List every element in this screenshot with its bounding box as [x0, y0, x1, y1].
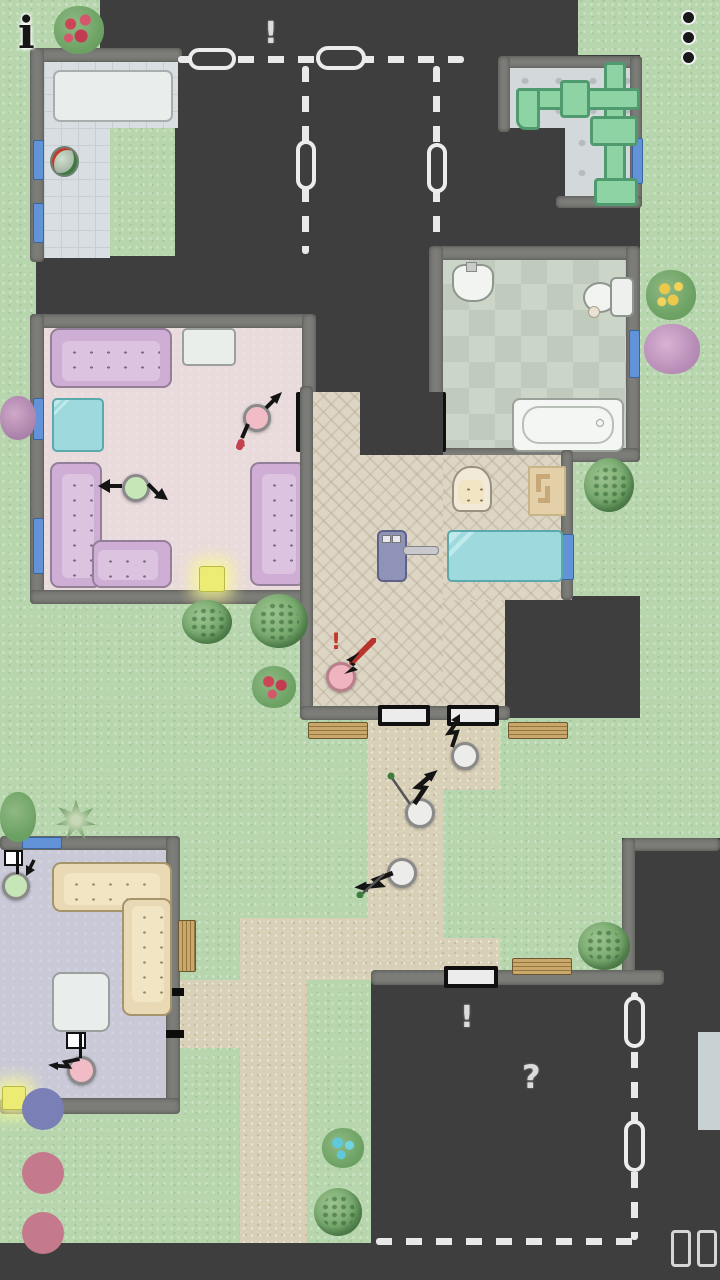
- menu-dot-icon: [681, 50, 696, 65]
- bench[interactable]: [178, 920, 196, 972]
- pause-bar-icon: [671, 1230, 691, 1267]
- exercise-machine-bar: [403, 546, 439, 555]
- tree: [578, 922, 630, 970]
- planned-door[interactable]: [316, 46, 366, 70]
- pouf-rose[interactable]: [22, 1152, 64, 1194]
- purple-bush: [644, 324, 700, 374]
- carried-red-item: [232, 422, 254, 452]
- menu-dot-icon: [681, 30, 696, 45]
- patio-door-1[interactable]: [378, 705, 430, 726]
- roof-mid-block: [505, 596, 640, 718]
- path: [177, 980, 240, 1048]
- direction-arrow: [20, 858, 40, 878]
- long-glass-table[interactable]: [447, 530, 563, 582]
- se-house-door[interactable]: [444, 966, 498, 988]
- red-flower-bush: [252, 666, 296, 708]
- pipe-coupling[interactable]: [590, 116, 638, 146]
- pipe-coupling[interactable]: [594, 178, 638, 206]
- wall: [30, 48, 182, 62]
- wall: [498, 56, 510, 132]
- tv-table[interactable]: [182, 328, 236, 366]
- planned-wall: [376, 1238, 640, 1245]
- zigzag-arrow: [408, 770, 442, 806]
- flag-pole: [16, 852, 19, 874]
- bench[interactable]: [308, 722, 368, 739]
- roof-central-column: [303, 250, 443, 394]
- corner-sofa-horiz[interactable]: [92, 540, 172, 588]
- sofa-3seat[interactable]: [50, 328, 172, 388]
- wall: [30, 314, 316, 328]
- purple-bush: [0, 396, 36, 440]
- planter-pot[interactable]: [50, 146, 79, 177]
- bush: [0, 792, 36, 842]
- planned-alert-marker: !: [264, 16, 278, 51]
- side-table[interactable]: [52, 972, 110, 1032]
- tree: [584, 458, 634, 512]
- se-question-marker: ?: [522, 1058, 541, 1096]
- info-button[interactable]: i: [18, 12, 35, 56]
- bean-bag-blue[interactable]: [22, 1088, 64, 1130]
- sink-faucet: [466, 262, 477, 272]
- window: [33, 140, 44, 180]
- game-map: !: [0, 0, 720, 1280]
- pouf-rose[interactable]: [22, 1212, 64, 1254]
- bed[interactable]: [53, 70, 173, 122]
- window: [629, 330, 640, 378]
- pause-button[interactable]: [671, 1230, 717, 1267]
- blue-flower-bush: [322, 1128, 364, 1168]
- pause-bar-icon: [697, 1230, 717, 1267]
- window: [33, 203, 44, 243]
- armchair[interactable]: [452, 466, 492, 512]
- path: [240, 980, 307, 1243]
- tree: [250, 594, 308, 648]
- planned-door[interactable]: [188, 48, 236, 70]
- roof-central-notch-b: [360, 392, 443, 455]
- rug[interactable]: [528, 466, 566, 516]
- roof-above-living: [36, 256, 308, 318]
- glass-table[interactable]: [52, 398, 104, 452]
- roof-planned-zone: [175, 55, 467, 260]
- toilet-paper: [588, 306, 600, 318]
- pipe-elbow[interactable]: [516, 88, 540, 130]
- tree: [314, 1188, 362, 1236]
- lounge-sofa-vert[interactable]: [122, 898, 172, 1016]
- planned-door[interactable]: [624, 996, 645, 1048]
- planned-door[interactable]: [427, 143, 447, 193]
- zigzag-arrow: [440, 714, 470, 748]
- bathtub-drain: [596, 419, 604, 427]
- distant-floor-notch: [698, 1032, 720, 1130]
- window: [22, 837, 62, 849]
- wall: [300, 386, 313, 718]
- red-flower-bush: [54, 6, 104, 54]
- pipe-coupling[interactable]: [560, 80, 590, 118]
- direction-arrow: [262, 390, 284, 412]
- green-sprout: [386, 772, 412, 806]
- floor-light[interactable]: [199, 566, 225, 592]
- toilet-tank: [610, 277, 634, 317]
- yellow-flower-bush: [646, 270, 696, 320]
- direction-arrow: [98, 476, 124, 496]
- window: [562, 534, 574, 580]
- planned-door[interactable]: [624, 1120, 645, 1172]
- door-tick[interactable]: [166, 1030, 184, 1038]
- menu-button[interactable]: [678, 10, 698, 66]
- star-plant: [56, 800, 96, 840]
- menu-dot-icon: [681, 10, 696, 25]
- tree: [182, 600, 232, 644]
- exercise-machine[interactable]: [377, 530, 407, 582]
- roof-se-house: [371, 975, 720, 1280]
- patio-floor: [443, 600, 505, 714]
- bench[interactable]: [508, 722, 568, 739]
- wall: [622, 838, 720, 851]
- green-sprout: [356, 868, 386, 898]
- wall: [429, 246, 640, 260]
- se-alert-marker: !: [460, 1000, 474, 1035]
- planned-door[interactable]: [296, 140, 316, 190]
- window: [33, 518, 44, 574]
- roof-east-house: [622, 838, 720, 980]
- bench[interactable]: [512, 958, 572, 975]
- carried-red-tool: [340, 638, 376, 678]
- sofa-2seat[interactable]: [250, 462, 306, 586]
- flag-pole: [79, 1034, 82, 1058]
- direction-arrow: [146, 480, 172, 504]
